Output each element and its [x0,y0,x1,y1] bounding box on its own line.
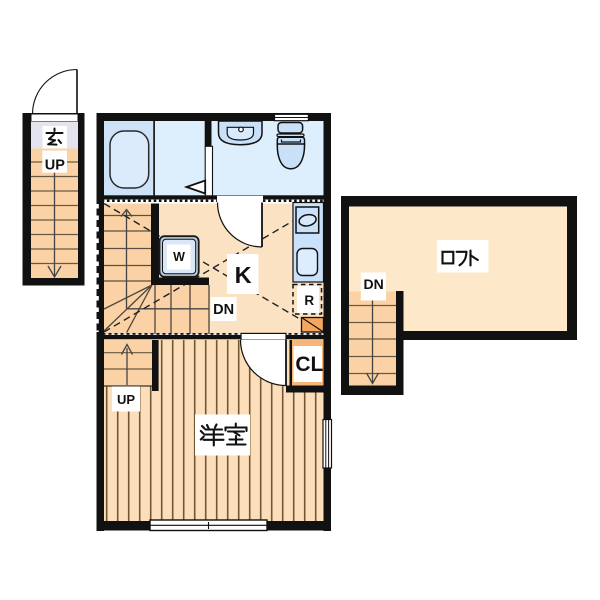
svg-text:DN: DN [213,302,234,318]
svg-text:CL: CL [295,353,323,376]
svg-text:R: R [304,293,314,308]
svg-text:K: K [235,262,252,288]
svg-text:UP: UP [117,392,135,407]
svg-text:DN: DN [363,276,383,292]
svg-text:W: W [173,250,185,264]
svg-text:UP: UP [45,157,65,173]
